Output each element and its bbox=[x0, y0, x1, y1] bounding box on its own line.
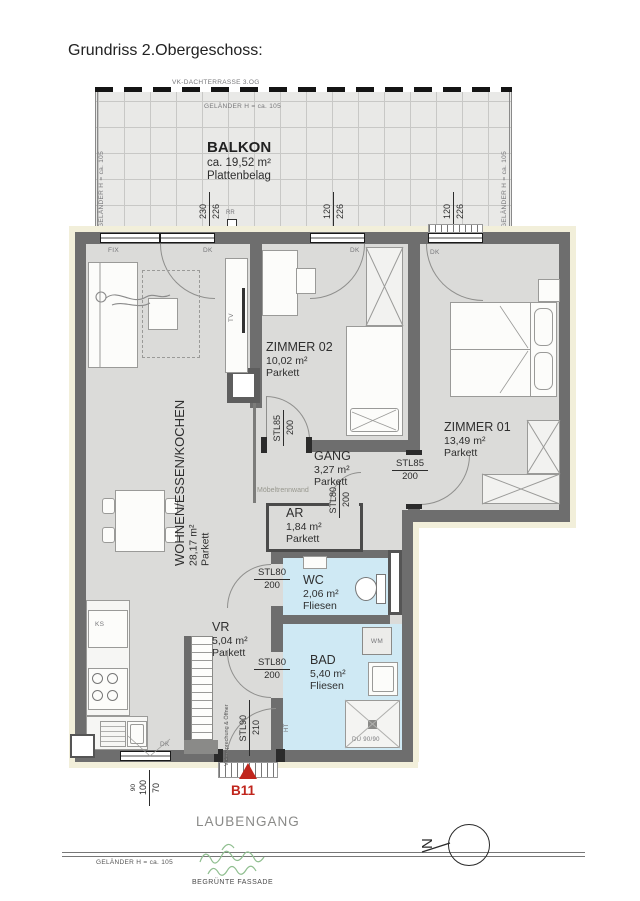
room-area: 28,17 m² bbox=[187, 358, 199, 566]
insulation-z01-bottom bbox=[413, 522, 576, 528]
door-post bbox=[306, 437, 312, 453]
room-floor: Parkett bbox=[212, 647, 248, 659]
burner bbox=[92, 673, 103, 684]
z02-chair bbox=[296, 268, 316, 294]
z01-pillow bbox=[534, 308, 553, 346]
north-label: N bbox=[419, 838, 436, 849]
door-dim-z02: STL85200 bbox=[272, 410, 295, 446]
fridge bbox=[88, 610, 128, 648]
wall-left bbox=[75, 232, 86, 762]
room-area: 5,04 m² bbox=[212, 635, 248, 647]
door-post bbox=[406, 504, 422, 509]
room-area: 3,27 m² bbox=[314, 464, 351, 476]
room-name: BAD bbox=[310, 653, 346, 668]
sofa bbox=[88, 262, 138, 368]
room-label-z02: ZIMMER 02 10,02 m² Parkett bbox=[266, 340, 333, 380]
terrace-label: VK-DACHTERRASSE 3.OG bbox=[172, 79, 260, 86]
insulation-right-upper bbox=[570, 226, 576, 522]
walkway-railing-line bbox=[62, 856, 585, 857]
wall-right-lower bbox=[402, 510, 413, 762]
room-label-vr: VR 5,04 m² Parkett bbox=[212, 620, 248, 660]
room-name: VR bbox=[212, 620, 248, 635]
window-kitchen bbox=[120, 751, 171, 761]
door-post bbox=[276, 749, 285, 762]
tv-screen bbox=[242, 288, 245, 333]
window-z02 bbox=[310, 233, 365, 243]
washing-machine-label: WM bbox=[371, 638, 383, 645]
burner bbox=[92, 690, 103, 701]
z01-wardrobe-wide bbox=[482, 474, 560, 504]
z01-wardrobe-tall bbox=[527, 420, 560, 474]
room-label-wohnen: WOHNEN/ESSEN/KOCHEN 28,17 m² Parkett bbox=[172, 358, 212, 566]
partition-line bbox=[253, 403, 256, 503]
room-floor: Parkett bbox=[286, 533, 322, 545]
z01-bed-midline bbox=[450, 349, 530, 350]
wall-right-upper bbox=[559, 232, 570, 522]
sink-basin-inner bbox=[130, 724, 144, 744]
door-dim-wc: STL80200 bbox=[254, 568, 290, 590]
vr-wardrobe-base bbox=[184, 740, 218, 754]
door-dim-entry: STL90210 bbox=[238, 700, 261, 756]
wall-z01-bottom bbox=[413, 510, 570, 522]
window-living-fix bbox=[100, 233, 160, 243]
shower-drain bbox=[368, 720, 377, 729]
room-area: 5,40 m² bbox=[310, 668, 346, 680]
chair bbox=[102, 527, 115, 543]
entry-note: Videosprechung & Öffner bbox=[224, 696, 230, 766]
greenery-sketch bbox=[200, 844, 264, 875]
walkway-railing-line bbox=[62, 852, 585, 853]
bad-sink-inner bbox=[372, 666, 394, 692]
vr-wardrobe-rail bbox=[184, 636, 191, 744]
balcony-name: BALKON bbox=[207, 139, 271, 157]
balcony-label: BALKON ca. 19,52 m² Plattenbelag bbox=[207, 139, 271, 184]
coffee-table bbox=[148, 298, 178, 330]
balcony-railing-left-label: GELÄNDER H = ca. 105 bbox=[98, 118, 105, 228]
room-name: ZIMMER 01 bbox=[444, 420, 511, 435]
green-facade-label: BEGRÜNTE FASSADE bbox=[192, 879, 273, 887]
window-dim-100-70: 90 100 70 bbox=[130, 770, 161, 806]
room-label-bad: BAD 5,40 m² Fliesen bbox=[310, 653, 346, 693]
tv-shaft-inner bbox=[233, 374, 254, 397]
balcony-size: ca. 19,52 m² bbox=[207, 157, 271, 171]
z01-bed-headline bbox=[530, 302, 531, 397]
room-name: GANG bbox=[314, 449, 351, 464]
burner bbox=[107, 690, 118, 701]
shower-label: DU 90/90 bbox=[352, 737, 380, 744]
balcony-railing-right-label: GELÄNDER H = ca. 105 bbox=[501, 118, 508, 228]
partition-label: Möbeltrennwand bbox=[257, 487, 309, 495]
window-z01 bbox=[428, 233, 483, 243]
z02-pillow bbox=[350, 408, 399, 432]
dk-label-kitchen: DK bbox=[160, 741, 170, 748]
z02-desk bbox=[262, 250, 298, 316]
entry-marker-triangle bbox=[239, 763, 257, 779]
door-post bbox=[261, 437, 267, 453]
door-dim-bad: STL80200 bbox=[254, 658, 290, 680]
window-living-dk bbox=[160, 233, 215, 243]
room-label-wc: WC 2,06 m² Fliesen bbox=[303, 573, 339, 613]
z01-nightstand bbox=[538, 279, 560, 302]
wall-vr-b bbox=[271, 606, 283, 652]
dining-table bbox=[115, 490, 165, 552]
room-name: AR bbox=[286, 506, 322, 521]
room-label-ar: AR 1,84 m² Parkett bbox=[286, 506, 322, 546]
wall-z02-z01 bbox=[408, 244, 420, 455]
washing-machine: WM bbox=[362, 627, 392, 655]
drainboard bbox=[100, 721, 126, 747]
wall-wc-bad bbox=[283, 615, 390, 624]
insulation-right-lower bbox=[413, 522, 419, 762]
room-floor: Fliesen bbox=[303, 600, 339, 612]
north-circle bbox=[448, 824, 490, 866]
fridge-label: KS bbox=[95, 621, 104, 628]
room-floor: Parkett bbox=[200, 358, 212, 566]
walkway-label: LAUBENGANG bbox=[196, 814, 300, 830]
room-floor: Parkett bbox=[444, 447, 511, 459]
room-area: 13,49 m² bbox=[444, 435, 511, 447]
floor-plan: Grundriss 2.Obergeschoss: VK-DACHTERRASS… bbox=[0, 0, 640, 901]
room-area: 2,06 m² bbox=[303, 588, 339, 600]
exterior-niche bbox=[70, 734, 95, 758]
unit-number: B11 bbox=[231, 783, 255, 799]
wc-toilet-tank bbox=[376, 574, 386, 604]
burner bbox=[107, 673, 118, 684]
z01-pillow bbox=[534, 352, 553, 390]
wc-sink bbox=[303, 556, 327, 569]
door-dim-z01: STL85200 bbox=[392, 459, 428, 481]
tv-label: TV bbox=[228, 302, 235, 322]
door-post bbox=[406, 450, 422, 455]
fix-label: FIX bbox=[108, 247, 119, 254]
wall-vr-a bbox=[271, 558, 283, 564]
room-floor: Fliesen bbox=[310, 680, 346, 692]
wc-shaft bbox=[388, 550, 402, 615]
rainpipe-label: RR bbox=[226, 210, 235, 217]
room-label-z01: ZIMMER 01 13,49 m² Parkett bbox=[444, 420, 511, 460]
balcony-railing-top-label: GELÄNDER H = ca. 105 bbox=[204, 103, 281, 110]
balcony-floor: Plattenbelag bbox=[207, 170, 271, 184]
room-area: 10,02 m² bbox=[266, 355, 333, 367]
walkway-railing-label: GELÄNDER H = ca. 105 bbox=[96, 859, 173, 866]
room-name: WC bbox=[303, 573, 339, 588]
vr-wardrobe-shelf bbox=[191, 636, 213, 740]
room-name: WOHNEN/ESSEN/KOCHEN bbox=[172, 358, 187, 566]
room-floor: Parkett bbox=[266, 367, 333, 379]
page-title: Grundriss 2.Obergeschoss: bbox=[68, 42, 263, 60]
door-dim-ar: STL80200 bbox=[328, 482, 351, 518]
chair bbox=[102, 498, 115, 514]
room-area: 1,84 m² bbox=[286, 521, 322, 533]
window-z01-sill-hatch bbox=[428, 224, 483, 233]
room-name: ZIMMER 02 bbox=[266, 340, 333, 355]
z02-wardrobe bbox=[366, 247, 403, 326]
ht-label: HT bbox=[284, 712, 291, 732]
